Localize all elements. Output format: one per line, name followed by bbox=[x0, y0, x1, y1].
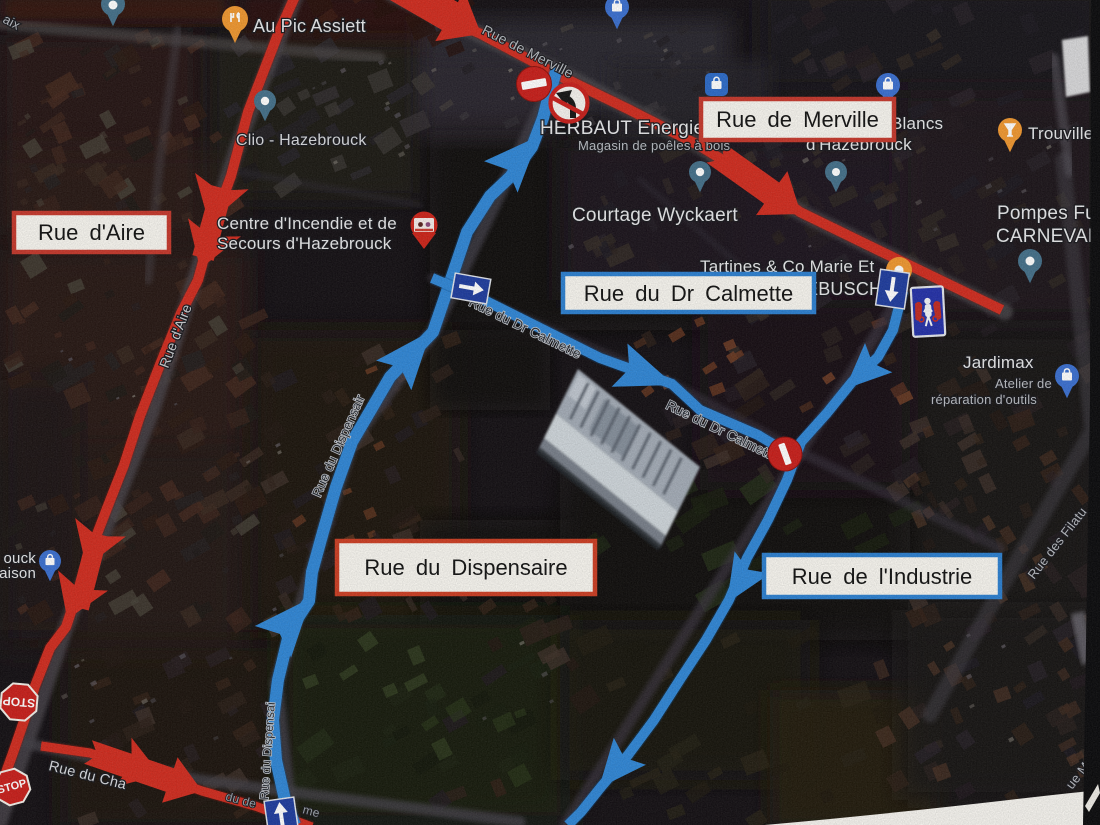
svg-text:Secours d'Hazebrouck: Secours d'Hazebrouck bbox=[217, 234, 392, 253]
svg-text:Pompes Fu: Pompes Fu bbox=[997, 203, 1096, 224]
svg-text:CARNEVAL: CARNEVAL bbox=[996, 226, 1099, 247]
svg-text:Rue d'Aire: Rue d'Aire bbox=[38, 220, 145, 245]
svg-text:STOP: STOP bbox=[2, 694, 36, 711]
svg-text:Atelier de: Atelier de bbox=[995, 376, 1052, 391]
svg-text:Blancs: Blancs bbox=[891, 114, 943, 133]
svg-text:aison: aison bbox=[0, 565, 36, 582]
svg-text:Rue de Merville: Rue de Merville bbox=[716, 107, 879, 132]
svg-text:Rue du Dispensaire: Rue du Dispensaire bbox=[364, 555, 567, 580]
svg-text:Rue de l'Industrie: Rue de l'Industrie bbox=[792, 564, 973, 589]
svg-text:réparation d'outils: réparation d'outils bbox=[931, 392, 1037, 407]
svg-text:Courtage Wyckaert: Courtage Wyckaert bbox=[572, 205, 738, 226]
svg-text:EBUSCH: EBUSCH bbox=[806, 279, 882, 299]
svg-text:Au Pic Assiett: Au Pic Assiett bbox=[253, 16, 366, 36]
svg-text:Rue du Dr Calmette: Rue du Dr Calmette bbox=[584, 281, 793, 306]
svg-text:Trouville: Trouville bbox=[1028, 124, 1093, 143]
svg-text:Clio - Hazebrouck: Clio - Hazebrouck bbox=[236, 132, 367, 149]
svg-text:Jardimax: Jardimax bbox=[963, 353, 1034, 372]
svg-text:Centre d'Incendie et de: Centre d'Incendie et de bbox=[217, 214, 397, 233]
